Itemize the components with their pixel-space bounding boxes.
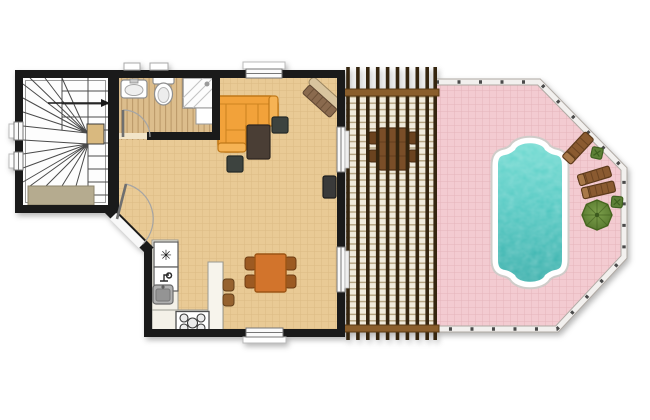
wall-stairs-bottom: [15, 205, 112, 213]
pergola-table: [378, 128, 409, 170]
bathroom-cabinet: [196, 108, 213, 124]
terrace-door-lower: [337, 247, 349, 292]
wall-stairs-right: [108, 70, 119, 213]
kitchen-peninsula: [208, 262, 223, 334]
window-living-top: [243, 62, 285, 78]
svg-text:✳: ✳: [160, 248, 172, 264]
wall-kitchen-left: [144, 247, 152, 337]
pergola-bottom-beam: [343, 325, 439, 332]
pool-water: [490, 134, 570, 290]
wall-tv: [323, 176, 336, 198]
parasol-table: [582, 200, 612, 230]
coffee-table: [247, 125, 270, 159]
terrace-door-upper: [337, 127, 349, 172]
side-table-right: [272, 117, 288, 133]
doormat: [28, 186, 94, 205]
dining-table: [255, 254, 286, 292]
window-bathroom-sill-1: [124, 63, 140, 70]
wall-top: [15, 70, 345, 78]
side-table-left: [227, 156, 243, 172]
pergola: [343, 67, 439, 340]
shower: [183, 78, 213, 108]
window-left-lower: [9, 152, 23, 170]
wall-bottom: [144, 329, 345, 337]
window-dining-bottom: [243, 328, 286, 343]
toilet: [153, 76, 174, 105]
fridge: ✳: [154, 242, 178, 267]
planter-top: [590, 146, 603, 159]
floor-plan: ✳: [0, 0, 650, 420]
bar-stool: [223, 279, 234, 291]
floor-plan-stage: ✳: [0, 0, 650, 420]
window-left-upper: [9, 122, 23, 140]
wall-bathroom-bottom: [147, 132, 215, 140]
planter-right: [611, 196, 623, 208]
window-bathroom-sill-2: [150, 63, 168, 70]
house: ✳: [9, 62, 349, 343]
kitchen-sink: [153, 285, 173, 304]
bar-stool: [223, 294, 234, 306]
wall-left: [15, 70, 23, 213]
stair-landing: [87, 124, 104, 144]
pool-deck: [436, 82, 624, 329]
wash-basin: [121, 79, 147, 98]
wall-bathroom-right: [212, 70, 220, 140]
wall-right: [337, 70, 345, 337]
pergola-top-beam: [343, 89, 439, 96]
swimming-pool: [490, 134, 570, 290]
